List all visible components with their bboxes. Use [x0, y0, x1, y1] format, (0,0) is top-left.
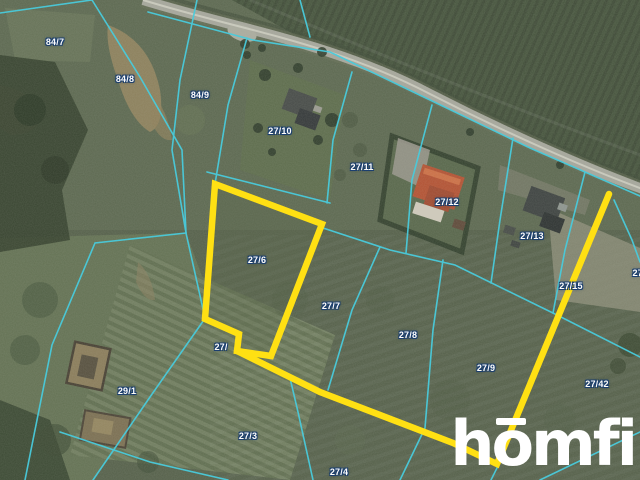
homfi-logo: homfi	[450, 415, 635, 472]
logo-letter: m	[531, 415, 593, 472]
logo-letter: i	[617, 415, 635, 472]
map-viewport[interactable]: 84/784/884/927/1027/1127/1227/1327/627/7…	[0, 0, 640, 480]
logo-letter: h	[450, 415, 491, 472]
logo-letter: o	[492, 415, 532, 472]
logo-letter: f	[593, 415, 617, 472]
